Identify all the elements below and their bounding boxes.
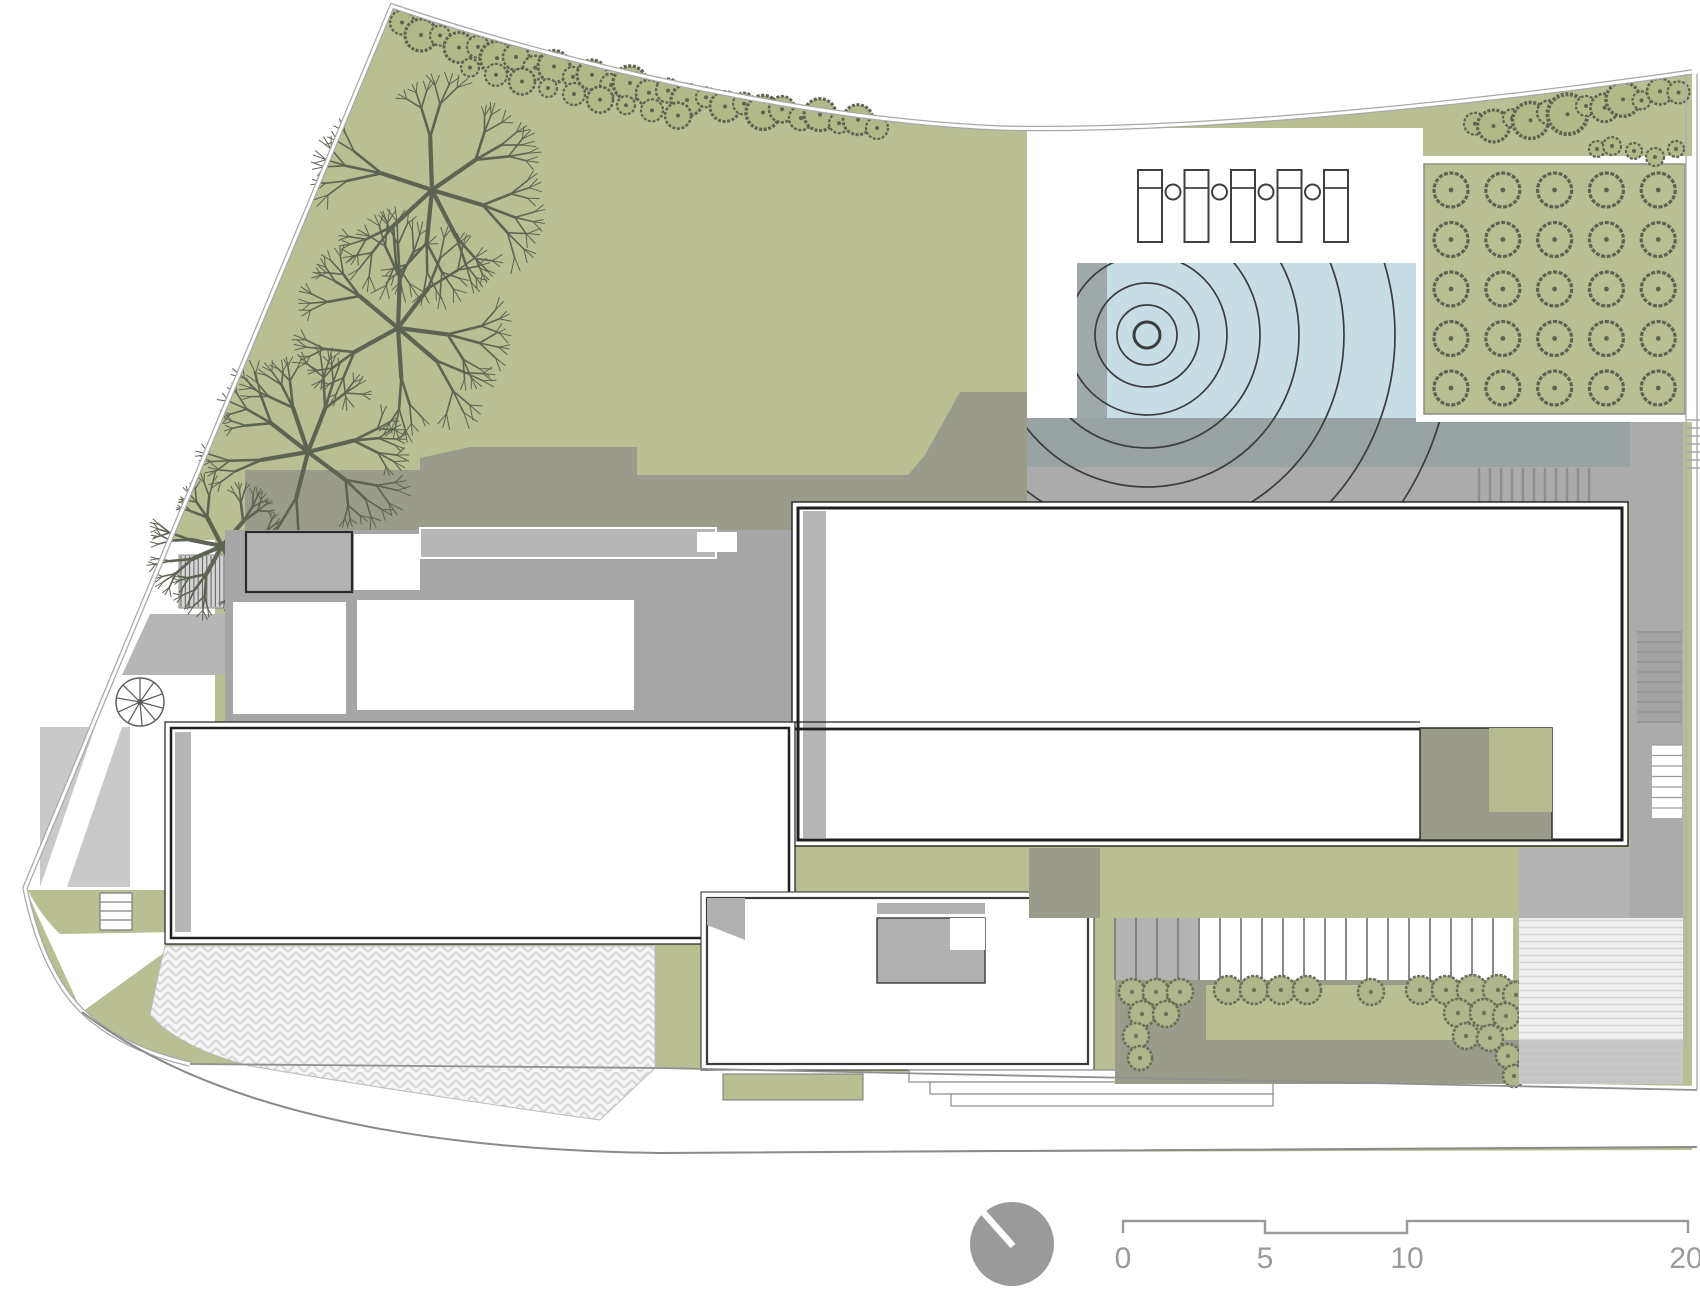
main-hall (792, 502, 1628, 846)
shrub-center-dot (1444, 988, 1448, 992)
shrub-center-dot (780, 107, 784, 111)
north-arrow (970, 1202, 1054, 1286)
shrub-center-dot (1279, 988, 1283, 992)
shrub-center-dot (598, 98, 602, 102)
tree-branch (527, 198, 539, 199)
lounge-chair-icon (1138, 170, 1162, 242)
tree-branch (316, 151, 327, 160)
band-green (1100, 848, 1513, 918)
shrub-center-dot (1154, 990, 1158, 994)
shrub-center-dot (495, 56, 499, 60)
orchard-tree-dot (1500, 336, 1505, 341)
shrub-center-dot (1130, 990, 1134, 994)
tree-branch (490, 102, 491, 115)
pavilion-bar (877, 903, 985, 914)
hall-core-strip (803, 511, 826, 838)
tree-branch (397, 222, 398, 245)
tree-branch (151, 557, 158, 559)
hall-block-green (1489, 728, 1552, 812)
shrub-center-dot (1178, 990, 1182, 994)
shrub-center-dot (742, 102, 746, 106)
orchard-tree-dot (1552, 336, 1557, 341)
shrub-center-dot (1464, 1034, 1468, 1038)
pool-deck-band (1027, 418, 1640, 467)
shrub-center-dot (1138, 1056, 1142, 1060)
band-olive (1029, 848, 1100, 918)
shrub-center-dot (1566, 112, 1570, 116)
shrub-center-dot (1492, 124, 1496, 128)
shrub-center-dot (1418, 988, 1422, 992)
shrub-center-dot (1621, 97, 1625, 101)
orchard-tree-dot (1656, 237, 1661, 242)
shrub-center-dot (723, 105, 727, 109)
shrub-center-dot (818, 113, 822, 117)
shrub-center-dot (1488, 1036, 1492, 1040)
tree-branch (430, 137, 432, 190)
shrub-center-dot (1674, 147, 1678, 151)
scale-label-0: 0 (1115, 1242, 1132, 1275)
pool-terrace (1027, 128, 1423, 430)
scale-label-20: 20 (1669, 1242, 1700, 1275)
orchard-tree-dot (1500, 386, 1505, 391)
shrub-center-dot (676, 114, 680, 118)
tree-branch (152, 544, 159, 547)
entry-steps (100, 893, 132, 930)
shrub-center-dot (1506, 1054, 1510, 1058)
orchard-tree-dot (1656, 188, 1661, 193)
lounge-chair-icon (1185, 170, 1209, 242)
orchard-tree-dot (1604, 386, 1609, 391)
side-table-icon (1305, 185, 1320, 200)
side-table-icon (1166, 185, 1181, 200)
shrub-center-dot (624, 103, 628, 107)
lounge-chair-icon (1278, 170, 1302, 242)
orchard-tree-dot (1656, 336, 1661, 341)
tree-branch (313, 155, 326, 160)
small-room (354, 534, 420, 590)
shrub-center-dot (1369, 990, 1373, 994)
shrub-center-dot (457, 46, 461, 50)
shrub-center-dot (1482, 1011, 1486, 1015)
walkway-stair-upper (1637, 632, 1682, 722)
tree-branch (230, 460, 262, 461)
upper-wing (225, 528, 795, 727)
tree-branch (427, 243, 428, 272)
scale-bar: 0 5 10 20 (1115, 1221, 1700, 1275)
south-planter (723, 1074, 863, 1100)
scale-label-10: 10 (1390, 1242, 1423, 1275)
shrub-center-dot (468, 66, 472, 70)
tree-branch (151, 535, 158, 536)
orchard-tree-dot (1552, 386, 1557, 391)
stair-band-white (1200, 918, 1513, 980)
shrub-center-dot (419, 33, 423, 37)
orchard-tree-dot (1449, 336, 1454, 341)
shrub-center-dot (1529, 118, 1533, 122)
orchard-tree-dot (1604, 287, 1609, 292)
orchard-tree-dot (1656, 386, 1661, 391)
shrub-center-dot (1140, 1012, 1144, 1016)
shrub-center-dot (1305, 988, 1309, 992)
orchard-tree-dot (1449, 287, 1454, 292)
orchard-tree-dot (1449, 386, 1454, 391)
shrub-center-dot (704, 95, 708, 99)
shrub-center-dot (590, 73, 594, 77)
tree-branch (150, 542, 159, 544)
tree-branch (340, 246, 341, 257)
shrub-center-dot (1470, 988, 1474, 992)
shrub-center-dot (533, 66, 537, 70)
shrub-center-dot (552, 65, 556, 69)
shrub-center-dot (1512, 1074, 1516, 1078)
shrub-center-dot (1632, 149, 1636, 153)
spiral-stair (116, 678, 164, 726)
wide-step (951, 1094, 1273, 1106)
shrub-center-dot (856, 118, 860, 122)
side-table-icon (1212, 185, 1227, 200)
lounge-chair-icon (1324, 170, 1348, 242)
orchard-tree-dot (1500, 188, 1505, 193)
east-paved-shadow (1519, 1040, 1683, 1084)
scale-bar-line (1123, 1221, 1688, 1233)
shrub-center-dot (1504, 1014, 1508, 1018)
tree-branch (311, 162, 324, 167)
orchard-tree-dot (1500, 237, 1505, 242)
wing-core-strip (175, 732, 191, 932)
orchard-tree-dot (1449, 237, 1454, 242)
shrub-center-dot (546, 86, 550, 90)
roof-slit (697, 532, 737, 552)
pavilion (701, 892, 1094, 1070)
shrub-center-dot (1653, 155, 1657, 159)
orchard-tree-dot (1604, 336, 1609, 341)
shrub-center-dot (1134, 1034, 1138, 1038)
shrub-center-dot (1595, 147, 1599, 151)
east-terrace-upper (1519, 848, 1630, 918)
shrub-center-dot (647, 91, 651, 95)
orchard-tree-dot (1552, 237, 1557, 242)
shrub-center-dot (685, 98, 689, 102)
shrub-center-dot (1514, 993, 1518, 997)
shrub-center-dot (1456, 1011, 1460, 1015)
orchard-tree-dot (1552, 287, 1557, 292)
shrub-center-dot (438, 34, 442, 38)
shrub-center-dot (1496, 988, 1500, 992)
shrub-center-dot (1658, 89, 1662, 93)
shrub-center-dot (761, 110, 765, 114)
orchard-tree-dot (1500, 287, 1505, 292)
gray-room (246, 532, 352, 592)
shrub-center-dot (571, 75, 575, 79)
tree-branch (211, 461, 230, 462)
room-a (233, 602, 346, 714)
shrub-center-dot (666, 89, 670, 93)
pavilion-core-notch (950, 918, 985, 950)
tree-branch (502, 122, 513, 123)
shrub-center-dot (1640, 98, 1644, 102)
roof-strip (420, 528, 716, 558)
side-table-icon (1259, 185, 1274, 200)
shrub-center-dot (650, 108, 654, 112)
orchard-tree-dot (1604, 237, 1609, 242)
orchard-tree-dot (1604, 188, 1609, 193)
shrub-center-dot (1252, 988, 1256, 992)
orchard-tree-dot (1552, 188, 1557, 193)
tree-branch (394, 461, 406, 462)
shrub-center-dot (799, 116, 803, 120)
shrub-center-dot (520, 80, 524, 84)
shrub-center-dot (1226, 988, 1230, 992)
shrub-center-dot (494, 73, 498, 77)
tree-branch (483, 380, 496, 381)
tree-branch (258, 511, 268, 512)
orchard-tree-dot (1449, 188, 1454, 193)
shrub-center-dot (875, 126, 879, 130)
orchard-tree-dot (1656, 287, 1661, 292)
tree-branch (323, 377, 325, 408)
tree-branch (508, 233, 528, 234)
shrub-center-dot (1677, 90, 1681, 94)
site-plan-canvas: 0 5 10 20 (0, 0, 1700, 1290)
pool-shallow-strip (1077, 263, 1107, 418)
tree-branch (398, 278, 400, 328)
room-b (357, 600, 634, 710)
orchard (1416, 156, 1694, 422)
shrub-center-dot (1584, 104, 1588, 108)
shrub-center-dot (572, 92, 576, 96)
shrub-center-dot (1610, 144, 1614, 148)
shrub-center-dot (476, 45, 480, 49)
lounge-chair-icon (1231, 170, 1255, 242)
tree-branch (319, 140, 331, 149)
site-plan-drawing: 0 5 10 20 (0, 0, 1700, 1290)
scale-label-5: 5 (1257, 1242, 1274, 1275)
tree-branch (413, 232, 414, 252)
spiral-stair-center (137, 699, 143, 705)
shrub-center-dot (514, 55, 518, 59)
tree-branch (148, 562, 156, 564)
shrub-center-dot (400, 20, 404, 24)
shrub-center-dot (1164, 1012, 1168, 1016)
shrub-center-dot (628, 81, 632, 85)
shrub-center-dot (837, 121, 841, 125)
